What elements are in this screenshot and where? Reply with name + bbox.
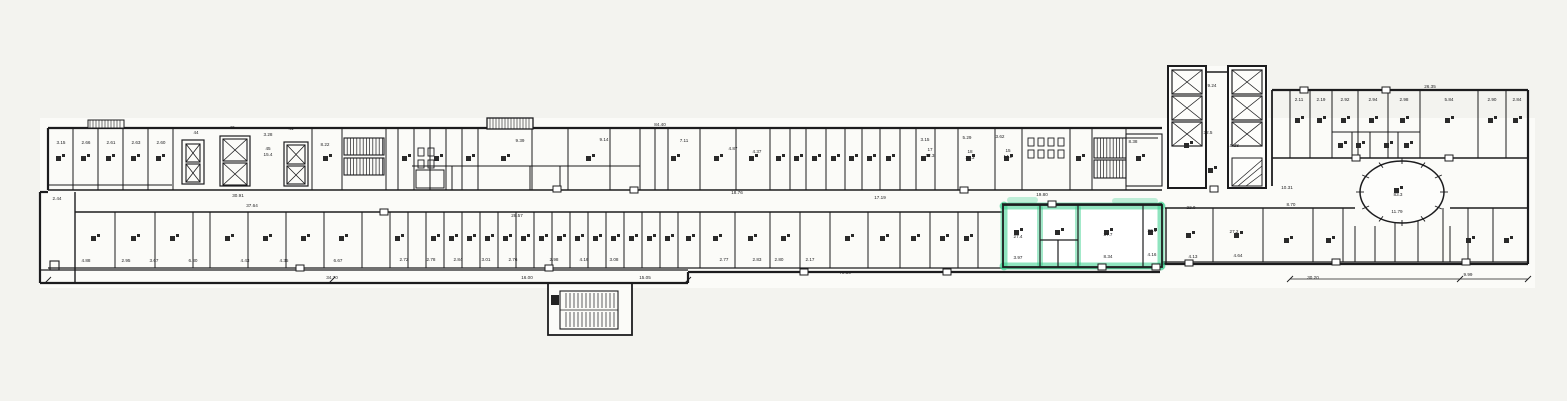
furniture-glyph [849,156,854,161]
furniture-glyph [867,156,872,161]
dimension-label: 10.31 [1281,185,1293,190]
furniture-glyph [1513,118,1518,123]
furniture-glyph [431,236,436,241]
furniture-glyph [106,156,111,161]
furniture-glyph [1082,154,1085,157]
furniture-glyph [170,236,175,241]
furniture-glyph [329,154,332,157]
furniture-glyph [401,234,404,237]
dimension-label: 2.80 [775,257,784,262]
door-opening [553,186,561,192]
dimension-label: 2.78 [427,257,436,262]
dimension-label: 84.40 [654,122,666,127]
door-opening [1462,259,1470,265]
dimension-label: 2.98 [550,257,559,262]
furniture-glyph [782,154,785,157]
furniture-glyph [1020,228,1023,231]
furniture-glyph [485,236,490,241]
dimension-label: 2.19 [1317,97,1326,102]
furniture-glyph [1301,116,1304,119]
dimension-label: 18 [967,149,973,154]
dimension-label: 2.95 [122,258,131,263]
dimension-label: 20.3 [966,155,975,160]
dimension-label: 45 [265,146,271,151]
furniture-glyph [1055,230,1060,235]
dimension-label: 6.67 [334,258,343,263]
furniture-glyph [440,154,443,157]
furniture-glyph [449,236,454,241]
furniture-glyph [581,234,584,237]
furniture-glyph [345,234,348,237]
furniture-glyph [1326,238,1331,243]
dimension-label: 15.4 [264,152,273,157]
dimension-label: 27.4 [1014,234,1023,239]
dimension-label: 37.7 [1104,232,1113,237]
furniture-glyph [647,236,652,241]
furniture-glyph [137,154,140,157]
furniture-glyph [1400,118,1405,123]
dimension-label: 11.79 [1391,209,1403,214]
furniture-glyph [749,156,754,161]
furniture-glyph [545,234,548,237]
door-opening [800,269,808,275]
furniture-glyph [575,236,580,241]
dimension-label: 4.37 [753,149,762,154]
dimension-label: 2.98 [1400,97,1409,102]
furniture-glyph [269,234,272,237]
furniture-glyph [1142,154,1145,157]
furniture-glyph [501,156,506,161]
furniture-glyph [748,236,753,241]
dimension-label: 2.66 [82,140,91,145]
dimension-label: 14.2 [1004,154,1013,159]
dimension-label: 2.44 [53,196,62,201]
door-opening [545,265,553,271]
furniture-glyph [1338,143,1343,148]
furniture-glyph [1184,143,1189,148]
furniture-glyph [467,236,472,241]
dimension-label: 2.94 [1369,97,1378,102]
furniture-glyph [491,234,494,237]
dimension-label: 5.29 [963,135,972,140]
furniture-glyph [1240,231,1243,234]
dimension-label: 3.28 [264,132,273,137]
dimension-label: 3.01 [482,257,491,262]
furniture-glyph [225,236,230,241]
furniture-glyph [1136,156,1141,161]
furniture-glyph [507,154,510,157]
floorplan-drawing: 2.443.152.662.612.632.6044423.28414515.4… [0,0,1567,401]
dimension-label: 4.43 [241,258,250,263]
dimension-label: 16.00 [521,275,533,280]
furniture-glyph [323,156,328,161]
furniture-glyph [599,234,602,237]
suite-floor [1003,205,1162,267]
dimension-label: 70.36 [839,270,851,275]
furniture-glyph [402,156,407,161]
dimension-label: 37.64 [246,203,258,208]
furniture-glyph [112,154,115,157]
furniture-glyph [1190,141,1193,144]
furniture-glyph [1076,156,1081,161]
furniture-glyph [231,234,234,237]
dimension-label: 42 [229,125,235,130]
furniture-glyph [509,234,512,237]
dimension-label: 2.83 [753,257,762,262]
furniture-glyph [719,234,722,237]
dimension-label: 8.70 [1287,202,1296,207]
building-body [40,190,1165,285]
dimension-label: 9.14 [600,137,609,142]
furniture-glyph [1472,236,1475,239]
furniture-glyph [592,154,595,157]
furniture-glyph [162,154,165,157]
furniture-glyph [1510,236,1513,239]
furniture-glyph [1347,116,1350,119]
furniture-glyph [800,154,803,157]
furniture-glyph [940,236,945,241]
furniture-glyph [892,154,895,157]
furniture-glyph [91,236,96,241]
furniture-glyph [692,234,695,237]
furniture-glyph [1369,118,1374,123]
furniture-glyph [831,156,836,161]
dimension-label: 32.5 [1204,130,1213,135]
furniture-glyph [754,234,757,237]
dimension-label: 2.84 [454,257,463,262]
furniture-glyph [635,234,638,237]
door-opening [630,187,638,193]
furniture-glyph [263,236,268,241]
door-opening [1445,155,1453,161]
dimension-label: 2.76 [509,257,518,262]
furniture-glyph [1208,168,1213,173]
furniture-glyph [1445,118,1450,123]
dimension-label: 3.62 [996,134,1005,139]
dimension-label: 3.15 [921,137,930,142]
furniture-glyph [1406,116,1409,119]
vent-strip [88,120,124,128]
furniture-glyph [1404,143,1409,148]
furniture-glyph [434,156,439,161]
furniture-glyph [87,154,90,157]
furniture-glyph [794,156,799,161]
dimension-label: 9.39 [516,138,525,143]
furniture-glyph [1519,116,1522,119]
dimension-label: 41 [288,126,294,131]
furniture-glyph [653,234,656,237]
furniture-glyph [970,234,973,237]
furniture-glyph [339,236,344,241]
furniture-glyph [1284,238,1289,243]
door-opening [1152,264,1160,270]
furniture-glyph [1290,236,1293,239]
furniture-glyph [1110,228,1113,231]
furniture-glyph [551,295,559,305]
dimension-label: 8.38 [1129,139,1138,144]
door-opening [1352,155,1360,161]
dimension-label: 18.76 [731,190,743,195]
furniture-glyph [1061,228,1064,231]
furniture-glyph [1400,186,1403,189]
dimension-label: 4.64 [1234,253,1243,258]
dimension-label: 4.87 [729,146,738,151]
dimension-label: 4.35 [280,258,289,263]
door-opening [1210,186,1218,192]
furniture-glyph [527,234,530,237]
furniture-glyph [671,156,676,161]
door-opening [1185,260,1193,266]
dimension-label: 15.05 [639,275,651,280]
furniture-glyph [408,154,411,157]
dimension-label: 2.61 [107,140,116,145]
dimension-label: 15 [1005,148,1011,153]
dimension-label: 19.80 [1036,192,1048,197]
furniture-glyph [886,234,889,237]
furniture-glyph [1384,143,1389,148]
furniture-glyph [1332,236,1335,239]
dimension-label: 2.84 [1513,97,1522,102]
furniture-glyph [818,154,821,157]
dimension-label: 4.16 [580,257,589,262]
furniture-glyph [886,156,891,161]
furniture-glyph [466,156,471,161]
furniture-glyph [781,236,786,241]
furniture-glyph [1488,118,1493,123]
furniture-glyph [131,236,136,241]
dimension-label: 7.11 [680,138,689,143]
furniture-glyph [755,154,758,157]
dimension-label: 28.57 [511,213,523,218]
furniture-glyph [1186,233,1191,238]
furniture-glyph [1214,166,1217,169]
furniture-glyph [714,156,719,161]
door-opening [1382,87,1390,93]
dimension-label: 6.80 [189,258,198,263]
furniture-glyph [156,156,161,161]
furniture-glyph [812,156,817,161]
door-opening [1300,87,1308,93]
furniture-glyph [62,154,65,157]
furniture-glyph [1356,143,1361,148]
dimension-label: 4.16 [1148,252,1157,257]
furniture-glyph [1466,238,1471,243]
furniture-glyph [521,236,526,241]
furniture-glyph [1362,141,1365,144]
furniture-glyph [395,236,400,241]
dimension-label: 3.97 [1014,255,1023,260]
furniture-glyph [776,156,781,161]
furniture-glyph [176,234,179,237]
furniture-glyph [539,236,544,241]
dimension-label: 2.11 [1295,97,1304,102]
furniture-glyph [97,234,100,237]
furniture-glyph [880,236,885,241]
door-opening [1332,259,1340,265]
dimension-label: 17 [927,147,933,152]
dimension-label: 2.17 [806,257,815,262]
furniture-glyph [593,236,598,241]
furniture-glyph [1390,141,1393,144]
dimension-label: 4.13 [1189,254,1198,259]
door-opening [1098,264,1106,270]
dimension-label: 9.24 [1208,83,1217,88]
dimension-label: 83.3 [1394,192,1403,197]
dimension-label: 10.38 [1227,143,1239,148]
furniture-glyph [611,236,616,241]
dimension-label: 2.72 [400,257,409,262]
door-opening [1048,201,1056,207]
furniture-glyph [1375,116,1378,119]
furniture-glyph [787,234,790,237]
furniture-glyph [911,236,916,241]
furniture-glyph [437,234,440,237]
furniture-glyph [131,156,136,161]
dimension-label: 27.2 [1230,229,1239,234]
dimension-label: 8.22 [321,142,330,147]
dimension-label: 12.3 [926,153,935,158]
furniture-glyph [1323,116,1326,119]
dimension-label: 5.84 [1445,97,1454,102]
dimension-label: 8.34 [1104,254,1113,259]
floorplan-scan: 2 этаж Правды ул., д.24, стр.4 2.443.152… [0,0,1567,401]
furniture-glyph [720,154,723,157]
furniture-glyph [455,234,458,237]
dimension-label: 44 [193,130,199,135]
furniture-glyph [1494,116,1497,119]
dimension-label: 22.1 [1148,228,1157,233]
furniture-glyph [946,234,949,237]
furniture-glyph [56,156,61,161]
furniture-glyph [964,236,969,241]
dimension-label: 2.77 [720,257,729,262]
furniture-glyph [686,236,691,241]
furniture-glyph [1317,118,1322,123]
elevator-tower [1228,66,1266,188]
furniture-glyph [137,234,140,237]
furniture-glyph [81,156,86,161]
furniture-glyph [837,154,840,157]
furniture-glyph [1192,231,1195,234]
dimension-label: 2.60 [157,140,166,145]
dimension-label: 17.19 [874,195,886,200]
dimension-label: 3.08 [610,257,619,262]
door-opening [943,269,951,275]
door-opening [296,265,304,271]
furniture-glyph [503,236,508,241]
furniture-glyph [1341,118,1346,123]
dimension-label: 30.91 [232,193,244,198]
furniture-glyph [1451,116,1454,119]
dimension-label: 3.15 [57,140,66,145]
door-opening [380,209,388,215]
dimension-label: 3.67 [150,258,159,263]
dimension-label: 34.70 [326,275,338,280]
furniture-glyph [665,236,670,241]
elevator-tower [1168,66,1206,188]
furniture-glyph [617,234,620,237]
furniture-glyph [586,156,591,161]
furniture-glyph [472,154,475,157]
furniture-glyph [1295,118,1300,123]
furniture-glyph [557,236,562,241]
furniture-glyph [671,234,674,237]
dimension-label: 26.35 [1424,84,1436,89]
furniture-glyph [677,154,680,157]
furniture-glyph [1504,238,1509,243]
furniture-glyph [873,154,876,157]
dimension-label: 2.92 [1341,97,1350,102]
furniture-glyph [1344,141,1347,144]
furniture-glyph [845,236,850,241]
furniture-glyph [713,236,718,241]
furniture-glyph [1410,141,1413,144]
dimension-label: 2.63 [132,140,141,145]
furniture-glyph [629,236,634,241]
furniture-glyph [307,234,310,237]
dimension-label: 4.88 [82,258,91,263]
furniture-glyph [917,234,920,237]
dimension-label: 9.99 [1464,272,1473,277]
furniture-glyph [473,234,476,237]
dimension-label: 22.0 [1187,205,1196,210]
furniture-glyph [851,234,854,237]
furniture-glyph [855,154,858,157]
furniture-glyph [301,236,306,241]
furniture-glyph [563,234,566,237]
dimension-label: 2.90 [1488,97,1497,102]
door-opening [960,187,968,193]
dimension-label: 30.20 [1307,275,1319,280]
